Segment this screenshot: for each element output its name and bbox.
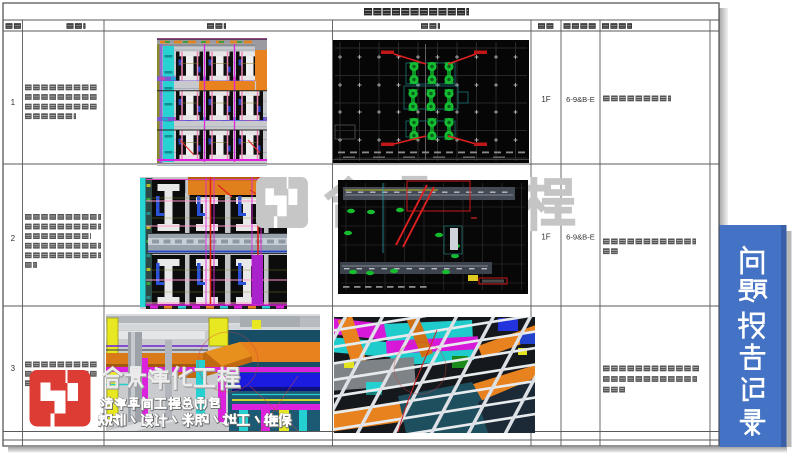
svg-text:3: 3 xyxy=(11,364,16,373)
svg-text:1: 1 xyxy=(11,98,16,107)
svg-text:2: 2 xyxy=(11,234,16,243)
svg-text:1F: 1F xyxy=(541,233,550,242)
svg-text:6-9&B-E: 6-9&B-E xyxy=(566,233,595,242)
svg-text:1F: 1F xyxy=(541,95,550,104)
svg-text:6-9&B-E: 6-9&B-E xyxy=(566,95,595,104)
